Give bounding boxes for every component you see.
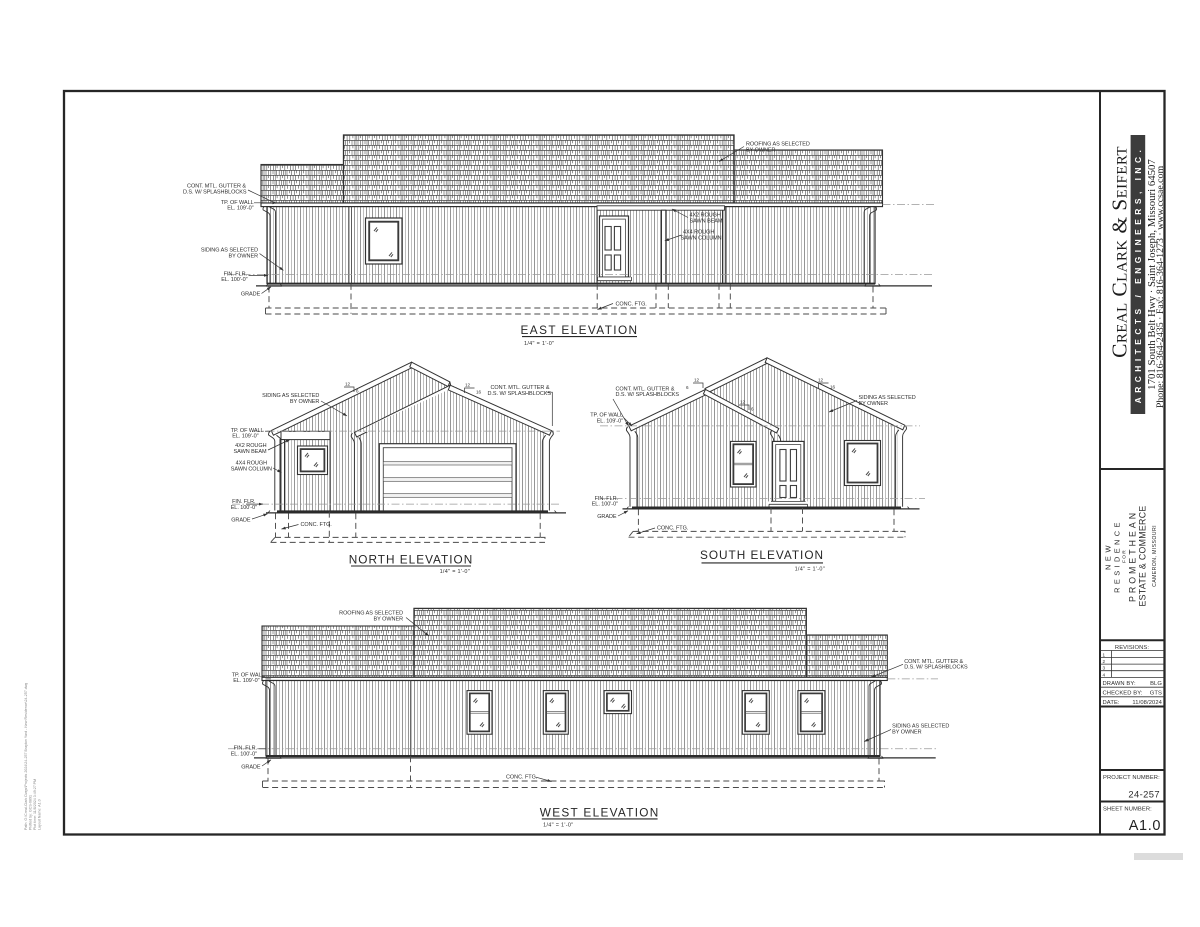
svg-text:PROJECT NUMBER:: PROJECT NUMBER:	[1103, 775, 1160, 781]
svg-text:12: 12	[345, 382, 351, 387]
svg-text:D.S. W/ SPLASHBLOCKS: D.S. W/ SPLASHBLOCKS	[616, 392, 680, 398]
svg-text:EL. 100'-0": EL. 100'-0"	[231, 751, 257, 757]
svg-text:BY OWNER: BY OWNER	[229, 253, 259, 259]
svg-text:GRADE: GRADE	[597, 514, 617, 520]
svg-text:SHEET NUMBER:: SHEET NUMBER:	[1103, 807, 1152, 813]
svg-text:EL. 109'-0": EL. 109'-0"	[597, 418, 623, 424]
svg-text:Phone: 816-364-2435 · Fax: 816: Phone: 816-364-2435 · Fax: 816-364-1273 …	[1155, 166, 1166, 409]
svg-text:16: 16	[476, 390, 482, 395]
svg-text:SAWN BEAM: SAWN BEAM	[234, 449, 267, 455]
svg-text:D.S. W/ SPLASHBLOCKS: D.S. W/ SPLASHBLOCKS	[488, 391, 552, 397]
svg-text:12: 12	[465, 383, 471, 388]
svg-text:CONC. FTG.: CONC. FTG.	[657, 525, 689, 531]
svg-text:EL. 100'-0": EL. 100'-0"	[592, 502, 618, 508]
svg-text:NEW: NEW	[1104, 542, 1113, 570]
svg-text:11/08/2024: 11/08/2024	[1132, 700, 1162, 706]
svg-text:SAWN COLUMN: SAWN COLUMN	[231, 466, 272, 472]
svg-text:2: 2	[1103, 659, 1106, 664]
svg-text:1/4" = 1'-0": 1/4" = 1'-0"	[524, 341, 554, 347]
svg-text:CHECKED BY:: CHECKED BY:	[1103, 690, 1143, 696]
svg-text:6: 6	[751, 407, 754, 412]
svg-text:CONC. FTG.: CONC. FTG.	[506, 775, 538, 781]
svg-text:D.S. W/ SPLASHBLOCKS: D.S. W/ SPLASHBLOCKS	[183, 189, 247, 195]
svg-text:WEST ELEVATION: WEST ELEVATION	[540, 806, 660, 820]
svg-text:GTS: GTS	[1150, 690, 1162, 696]
svg-text:REVISIONS:: REVISIONS:	[1115, 645, 1149, 651]
svg-text:BY OWNER: BY OWNER	[859, 401, 889, 407]
svg-text:DATE:: DATE:	[1103, 700, 1120, 706]
svg-text:RESIDENCE: RESIDENCE	[1113, 519, 1122, 593]
svg-text:SOUTH ELEVATION: SOUTH ELEVATION	[700, 548, 824, 562]
svg-text:EL. 109'-0": EL. 109'-0"	[227, 206, 253, 212]
svg-text:BLG: BLG	[1150, 681, 1162, 687]
svg-text:6: 6	[356, 389, 359, 394]
svg-text:D.S. W/ SPLASHBLOCKS: D.S. W/ SPLASHBLOCKS	[904, 665, 968, 671]
svg-text:3: 3	[1103, 666, 1106, 671]
svg-text:16: 16	[830, 385, 836, 390]
svg-text:ARCHITECTS / ENGINEERS, INC.: ARCHITECTS / ENGINEERS, INC.	[1133, 146, 1143, 404]
svg-text:GRADE: GRADE	[241, 292, 261, 298]
svg-text:EL. 100'-0": EL. 100'-0"	[231, 505, 257, 511]
svg-text:CONC. FTG.: CONC. FTG.	[616, 302, 648, 308]
svg-text:GRADE: GRADE	[231, 517, 251, 523]
svg-text:Layout Name: A1.0: Layout Name: A1.0	[38, 799, 42, 830]
svg-text:4: 4	[1103, 672, 1106, 677]
svg-text:BY OWNER: BY OWNER	[290, 399, 320, 405]
svg-text:BY OWNER: BY OWNER	[746, 147, 776, 153]
svg-text:BY OWNER: BY OWNER	[374, 616, 404, 622]
svg-text:EAST ELEVATION: EAST ELEVATION	[521, 323, 639, 337]
svg-text:GRADE: GRADE	[241, 765, 261, 771]
svg-text:FOR: FOR	[1121, 549, 1127, 563]
svg-text:12: 12	[694, 378, 700, 383]
svg-text:12: 12	[740, 400, 746, 405]
svg-text:6: 6	[686, 385, 689, 390]
svg-text:A1.0: A1.0	[1129, 818, 1161, 834]
svg-text:EL. 109'-0": EL. 109'-0"	[232, 434, 258, 440]
svg-text:1/4" = 1'-0": 1/4" = 1'-0"	[795, 567, 825, 573]
svg-text:12: 12	[818, 378, 824, 383]
svg-text:1/4" = 1'-0": 1/4" = 1'-0"	[440, 569, 470, 575]
svg-text:CAMERON, MISSOURI: CAMERON, MISSOURI	[1152, 525, 1158, 587]
svg-text:EL. 100'-0": EL. 100'-0"	[221, 277, 247, 283]
svg-text:Path: G:\Creal-Clark Dwgs\Proj: Path: G:\Creal-Clark Dwgs\Projects 2024\…	[24, 683, 28, 830]
svg-text:Plotted by: GCS-6891: Plotted by: GCS-6891	[29, 795, 33, 830]
svg-text:DRAWN BY:: DRAWN BY:	[1103, 681, 1137, 687]
svg-text:1: 1	[1103, 652, 1106, 657]
svg-text:Plot time: 11/8/2024 3:49:27: Plot time: 11/8/2024 3:49:27 PM	[33, 779, 37, 830]
svg-text:CONC. FTG.: CONC. FTG.	[301, 522, 333, 528]
svg-text:1/4" = 1'-0": 1/4" = 1'-0"	[543, 822, 573, 828]
svg-text:SAWN BEAM: SAWN BEAM	[690, 218, 723, 224]
svg-text:NORTH ELEVATION: NORTH ELEVATION	[349, 553, 473, 567]
svg-text:PROMETHEAN: PROMETHEAN	[1128, 510, 1138, 602]
svg-text:EL. 109'-0": EL. 109'-0"	[233, 678, 259, 684]
svg-text:SAWN COLUMN: SAWN COLUMN	[681, 235, 722, 241]
svg-text:ESTATE & COMMERCE: ESTATE & COMMERCE	[1138, 505, 1148, 606]
svg-text:Creal Clark & Seifert: Creal Clark & Seifert	[1108, 146, 1132, 358]
svg-text:24-257: 24-257	[1128, 789, 1160, 800]
svg-text:BY OWNER: BY OWNER	[892, 729, 922, 735]
